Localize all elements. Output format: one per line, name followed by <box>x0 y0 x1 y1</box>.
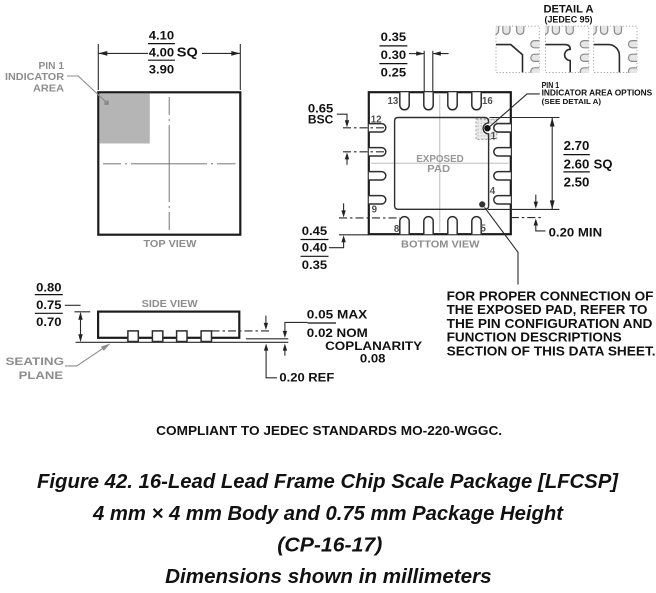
svg-text:BSC: BSC <box>308 113 334 127</box>
svg-text:COMPLIANT TO JEDEC STANDARDS M: COMPLIANT TO JEDEC STANDARDS MO-220-WGGC… <box>156 423 502 438</box>
svg-text:0.80: 0.80 <box>36 280 62 294</box>
svg-text:0.25: 0.25 <box>381 65 407 79</box>
svg-text:4 mm × 4 mm Body and 0.75 mm P: 4 mm × 4 mm Body and 0.75 mm Package Hei… <box>92 503 564 525</box>
svg-text:2.60: 2.60 <box>564 158 590 172</box>
svg-text:0.40: 0.40 <box>302 241 328 255</box>
svg-text:0.35: 0.35 <box>381 30 407 44</box>
svg-text:0.20 REF: 0.20 REF <box>279 372 334 384</box>
svg-text:SIDE VIEW: SIDE VIEW <box>142 298 198 310</box>
svg-text:0.75: 0.75 <box>36 298 62 312</box>
svg-text:(CP-16-17): (CP-16-17) <box>277 535 382 557</box>
svg-text:4: 4 <box>490 186 496 197</box>
svg-text:THE EXPOSED PAD, REFER TO: THE EXPOSED PAD, REFER TO <box>447 302 648 317</box>
svg-text:Figure 42. 16-Lead Lead Frame: Figure 42. 16-Lead Lead Frame Chip Scale… <box>37 471 619 493</box>
svg-text:0.45: 0.45 <box>302 224 328 238</box>
svg-text:COPLANARITY: COPLANARITY <box>325 341 422 353</box>
svg-text:3.90: 3.90 <box>149 63 175 77</box>
svg-text:SEATING: SEATING <box>6 356 65 368</box>
svg-text:BOTTOM VIEW: BOTTOM VIEW <box>401 239 480 251</box>
svg-text:8: 8 <box>394 224 400 235</box>
svg-text:PIN 1: PIN 1 <box>39 61 65 72</box>
svg-text:PAD: PAD <box>427 164 450 175</box>
svg-text:4.00: 4.00 <box>149 46 175 60</box>
svg-text:0.05 MAX: 0.05 MAX <box>307 309 368 321</box>
svg-text:FOR PROPER CONNECTION OF: FOR PROPER CONNECTION OF <box>447 288 654 303</box>
svg-text:0.35: 0.35 <box>302 258 328 272</box>
svg-text:THE PIN CONFIGURATION AND: THE PIN CONFIGURATION AND <box>447 316 653 331</box>
svg-text:2.70: 2.70 <box>564 139 590 153</box>
svg-text:16: 16 <box>482 96 493 107</box>
svg-text:9: 9 <box>372 205 378 216</box>
svg-text:13: 13 <box>388 96 399 107</box>
svg-text:0.08: 0.08 <box>360 353 386 365</box>
svg-text:1: 1 <box>491 131 497 142</box>
svg-text:12: 12 <box>371 115 382 126</box>
svg-text:(SEE DETAIL A): (SEE DETAIL A) <box>542 97 602 106</box>
svg-text:(JEDEC 95): (JEDEC 95) <box>545 14 593 25</box>
svg-text:0.20 MIN: 0.20 MIN <box>549 225 603 239</box>
svg-text:Dimensions shown in millimeter: Dimensions shown in millimeters <box>165 566 492 588</box>
svg-text:4.10: 4.10 <box>149 28 175 42</box>
svg-text:0.70: 0.70 <box>36 315 62 329</box>
svg-text:AREA: AREA <box>33 83 64 94</box>
svg-text:2.50: 2.50 <box>564 176 590 190</box>
svg-text:5: 5 <box>481 224 487 235</box>
svg-text:0.30: 0.30 <box>381 48 407 62</box>
svg-text:FUNCTION DESCRIPTIONS: FUNCTION DESCRIPTIONS <box>447 330 622 345</box>
svg-text:INDICATOR: INDICATOR <box>5 72 64 83</box>
svg-text:SQ: SQ <box>177 46 198 60</box>
svg-text:PLANE: PLANE <box>19 370 64 382</box>
svg-text:SQ: SQ <box>594 158 613 172</box>
svg-text:0.02 NOM: 0.02 NOM <box>307 328 368 340</box>
svg-text:TOP VIEW: TOP VIEW <box>143 238 196 250</box>
svg-text:SECTION OF THIS DATA SHEET.: SECTION OF THIS DATA SHEET. <box>447 344 656 359</box>
